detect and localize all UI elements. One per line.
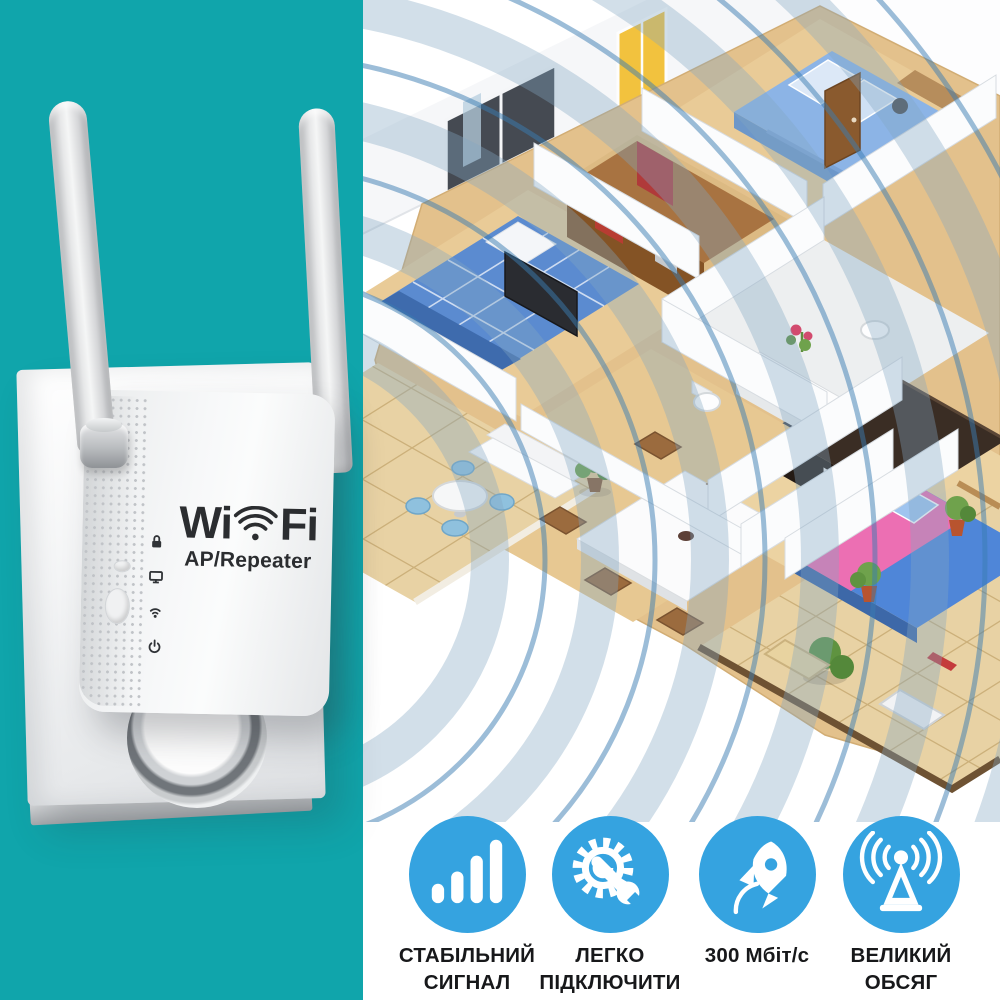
feature-stable-signal: СТАБІЛЬНИЙ СИГНАЛ (387, 816, 547, 996)
wifi-signal-icon (147, 603, 164, 620)
logo-wi: Wi (179, 499, 233, 545)
feature-list: СТАБІЛЬНИЙ СИГНАЛ (360, 812, 1000, 1000)
logo-fi: Fi (279, 502, 318, 548)
feature-disc (552, 816, 669, 933)
power-icon (146, 638, 163, 655)
device-subtitle: AP/Repeater (168, 547, 328, 574)
device-logo: Wi Fi AP/Repeater (168, 499, 329, 574)
feature-disc (843, 816, 960, 933)
rocket-icon (713, 831, 801, 919)
feature-disc (699, 816, 816, 933)
feature-label: ЛЕГКО ПІДКЛЮЧИТИ (530, 942, 690, 996)
led-indicators (146, 533, 166, 655)
gear-wrench-icon (566, 831, 654, 919)
product-banner: Wi Fi AP/Repeater (0, 0, 1000, 1000)
antenna-hinge (80, 424, 128, 468)
wifi-arcs-icon (234, 506, 279, 545)
lan-display-icon (147, 568, 164, 585)
wifi-extender-photo: Wi Fi AP/Repeater (0, 0, 380, 1000)
floorplan-illustration (355, 0, 1000, 822)
signal-bars-icon (423, 831, 511, 919)
feature-label: ВЕЛИКИЙ ОБСЯГ (821, 942, 981, 996)
feature-speed: 300 Мбіт/с (677, 816, 837, 969)
feature-coverage: ВЕЛИКИЙ ОБСЯГ (821, 816, 981, 996)
feature-disc (409, 816, 526, 933)
feature-label: 300 Мбіт/с (677, 942, 837, 969)
wps-lock-icon (148, 533, 165, 550)
reset-button (114, 560, 131, 572)
feature-easy-setup: ЛЕГКО ПІДКЛЮЧИТИ (530, 816, 690, 996)
feature-label: СТАБІЛЬНИЙ СИГНАЛ (387, 942, 547, 996)
antenna-broadcast-icon (857, 831, 945, 919)
